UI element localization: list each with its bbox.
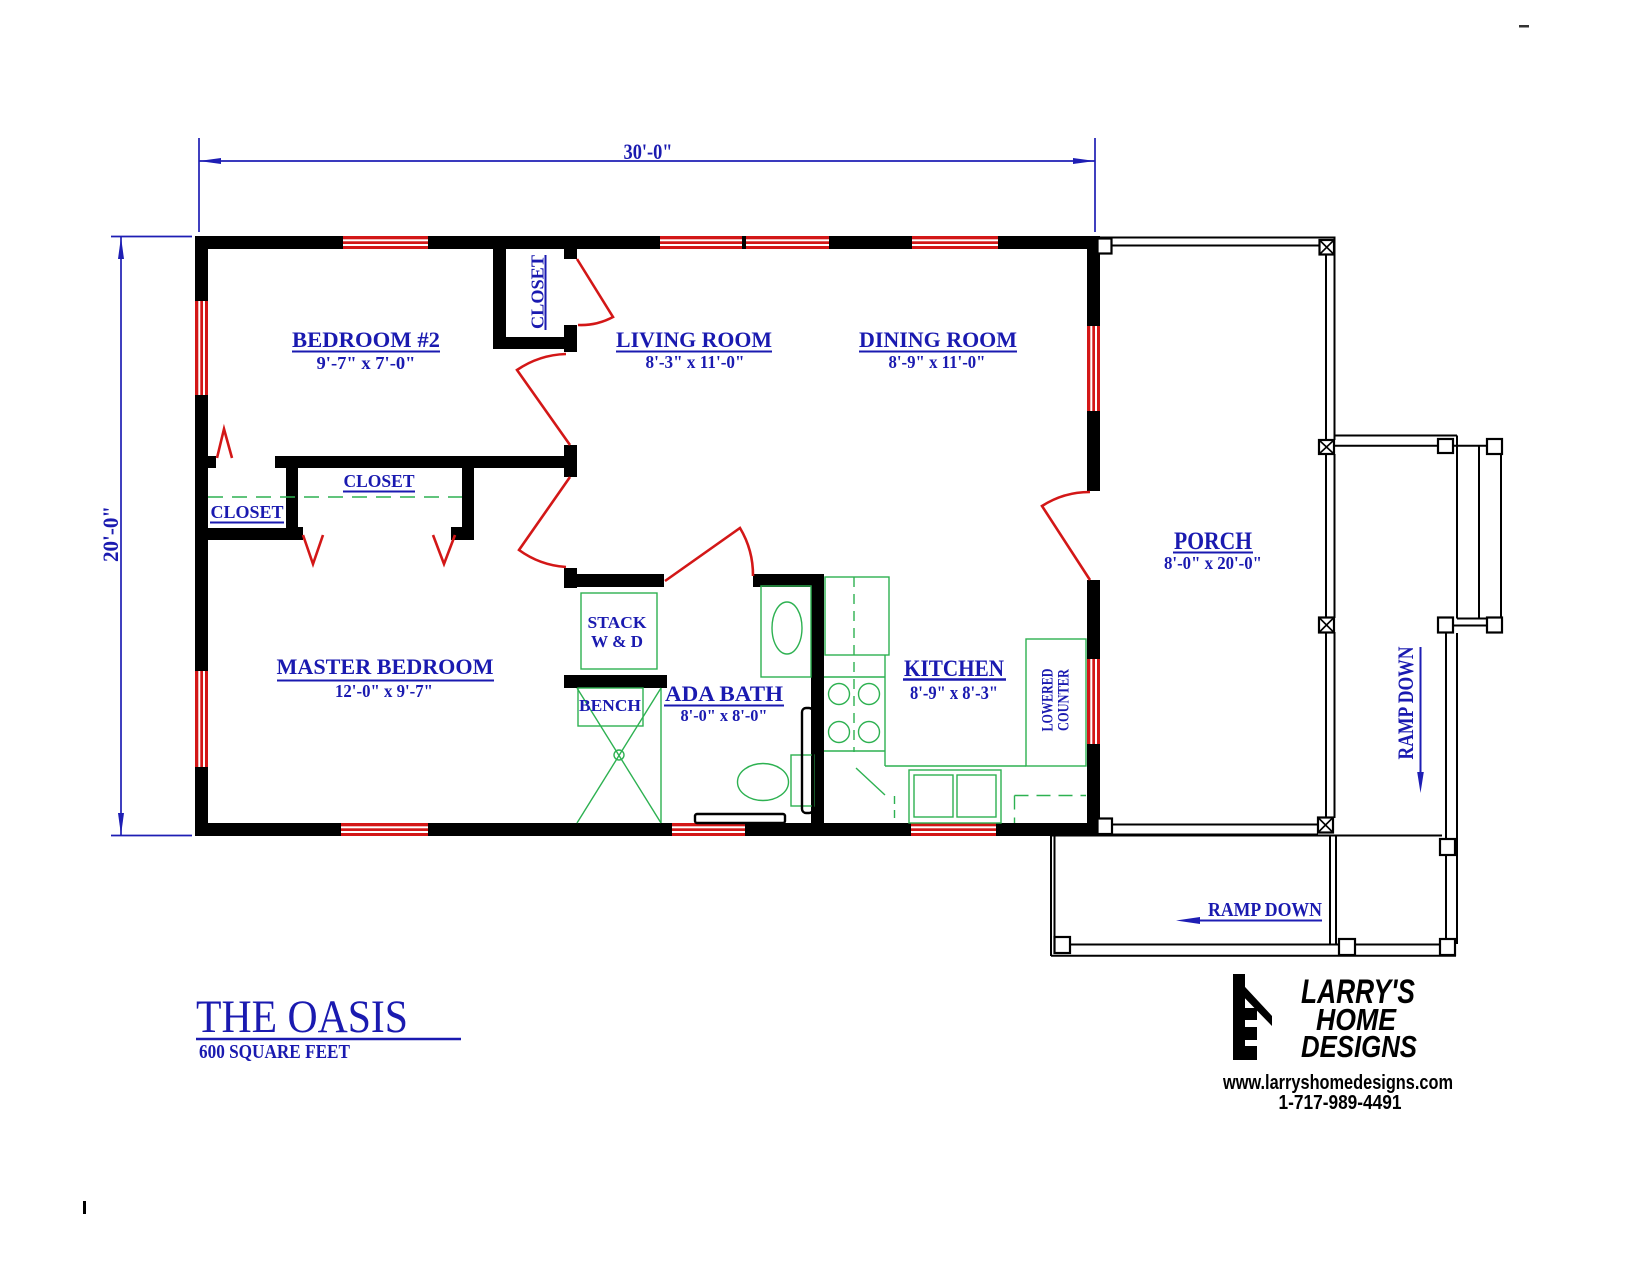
svg-text:DINING ROOM: DINING ROOM: [859, 327, 1017, 352]
svg-text:8'-9" x 8'-3": 8'-9" x 8'-3": [910, 683, 998, 704]
svg-text:www.larryshomedesigns.com: www.larryshomedesigns.com: [1222, 1072, 1453, 1094]
svg-text:9'-7" x 7'-0": 9'-7" x 7'-0": [317, 353, 416, 373]
svg-text:30'-0": 30'-0": [624, 139, 673, 164]
svg-text:COUNTER: COUNTER: [1056, 668, 1073, 731]
svg-text:STACK: STACK: [588, 613, 648, 632]
svg-text:LOWERED: LOWERED: [1040, 669, 1057, 732]
svg-text:RAMP DOWN: RAMP DOWN: [1393, 646, 1418, 759]
svg-text:MASTER BEDROOM: MASTER BEDROOM: [277, 654, 494, 679]
svg-text:1-717-989-4491: 1-717-989-4491: [1279, 1092, 1402, 1114]
svg-text:BEDROOM #2: BEDROOM #2: [292, 327, 440, 352]
svg-text:RAMP DOWN: RAMP DOWN: [1208, 899, 1322, 921]
svg-text:LIVING ROOM: LIVING ROOM: [616, 327, 772, 352]
svg-text:BENCH: BENCH: [579, 696, 641, 715]
svg-text:12'-0" x 9'-7": 12'-0" x 9'-7": [335, 681, 433, 701]
svg-text:KITCHEN: KITCHEN: [904, 656, 1004, 681]
svg-text:CLOSET: CLOSET: [211, 502, 284, 522]
svg-text:600 SQUARE FEET: 600 SQUARE FEET: [199, 1041, 351, 1063]
svg-text:8'-3" x 11'-0": 8'-3" x 11'-0": [646, 352, 745, 372]
svg-text:8'-0" x 8'-0": 8'-0" x 8'-0": [681, 706, 768, 725]
svg-text:DESIGNS: DESIGNS: [1301, 1029, 1417, 1064]
svg-text:8'-0" x 20'-0": 8'-0" x 20'-0": [1164, 553, 1262, 573]
svg-text:CLOSET: CLOSET: [344, 471, 415, 491]
svg-text:W & D: W & D: [591, 632, 643, 651]
svg-text:20'-0": 20'-0": [98, 506, 123, 562]
svg-text:8'-9" x 11'-0": 8'-9" x 11'-0": [889, 352, 986, 372]
svg-text:ADA BATH: ADA BATH: [665, 681, 783, 706]
svg-text:PORCH: PORCH: [1174, 528, 1252, 555]
svg-text:THE OASIS: THE OASIS: [196, 991, 408, 1043]
